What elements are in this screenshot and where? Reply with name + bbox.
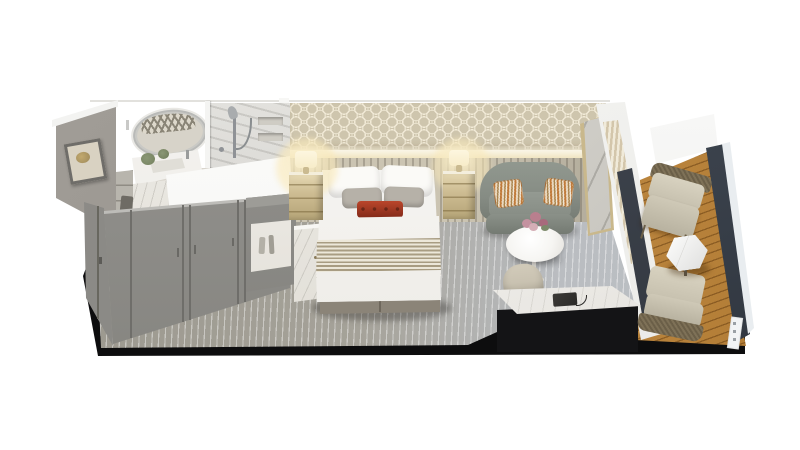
wardrobe-door-gap-4 [237, 200, 239, 304]
entry-door-handle [99, 257, 102, 264]
table-lamp-left-shade [295, 151, 317, 168]
minibar-bottle-2 [269, 235, 275, 254]
sofa-cushion-striped-right [542, 177, 574, 208]
flower-leaf [541, 225, 549, 231]
telephone [553, 292, 578, 307]
wardrobe-door-gap-3 [189, 205, 191, 320]
vanity-faucet [186, 150, 189, 159]
wall-top-edge-line [90, 100, 610, 102]
wardrobe-door-gap-5 [244, 200, 246, 302]
mirror-sconce-left [126, 120, 129, 130]
sofa-cushion-striped-left [492, 178, 524, 209]
table-lamp-right-shade [449, 150, 469, 166]
shower-control-knob [219, 147, 224, 152]
wardrobe-door-gap-1 [130, 210, 132, 338]
table-lamp-right-base [456, 165, 462, 172]
bed-pillow-red [357, 201, 403, 218]
wardrobe-handle-1 [177, 248, 179, 257]
nightstand-right [443, 171, 475, 219]
nightstand-left [289, 172, 323, 220]
flower-4 [529, 223, 538, 231]
railing-bracket-screws [733, 322, 736, 344]
stateroom-render [0, 0, 800, 450]
vanity-plant-right [158, 149, 169, 159]
minibar-bottle-1 [259, 237, 266, 254]
table-lamp-left-base [303, 167, 309, 174]
wardrobe-handle-2 [194, 245, 196, 254]
wardrobe-handle-3 [232, 238, 234, 246]
vanity-plant-left [141, 153, 155, 165]
shower-niche-lower [258, 133, 283, 141]
shower-niche-upper [258, 117, 283, 125]
wardrobe-door-gap-2 [182, 205, 184, 322]
flower-bouquet [522, 212, 550, 234]
chair-upper-leg-left [640, 225, 646, 239]
shower-glass-mullion [205, 101, 210, 175]
